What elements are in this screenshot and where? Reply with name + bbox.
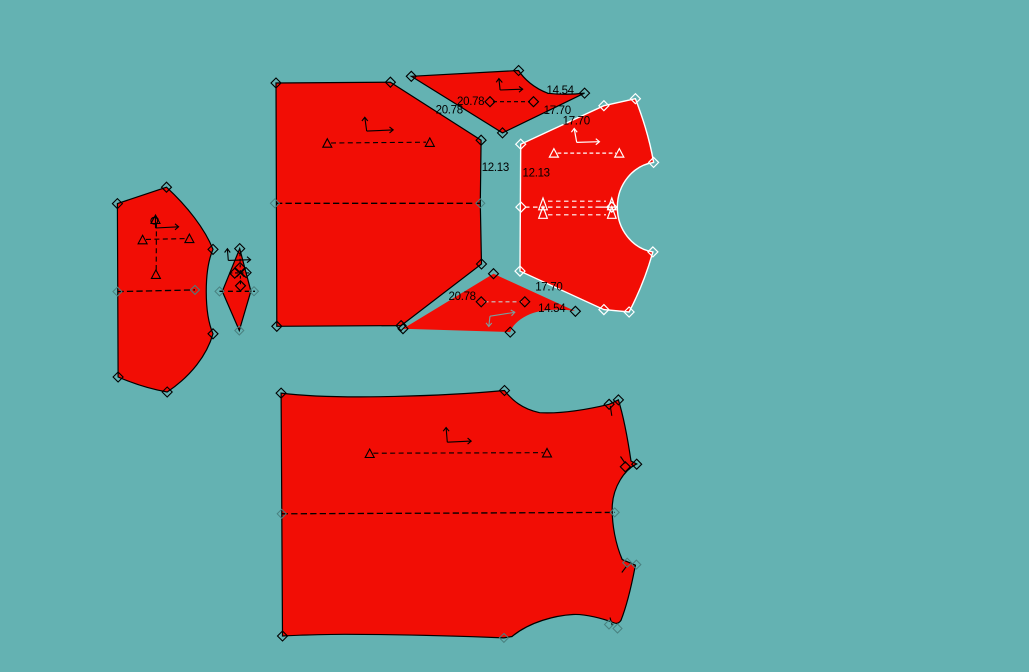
svg-text:20.78: 20.78 [449, 291, 476, 303]
svg-text:12.13: 12.13 [482, 162, 509, 174]
svg-text:17.70: 17.70 [563, 115, 590, 127]
svg-text:17.70: 17.70 [535, 282, 562, 294]
svg-text:20.78: 20.78 [436, 104, 463, 116]
svg-text:14.54: 14.54 [538, 303, 566, 315]
svg-text:12.13: 12.13 [523, 167, 550, 179]
svg-text:14.54: 14.54 [547, 85, 575, 97]
